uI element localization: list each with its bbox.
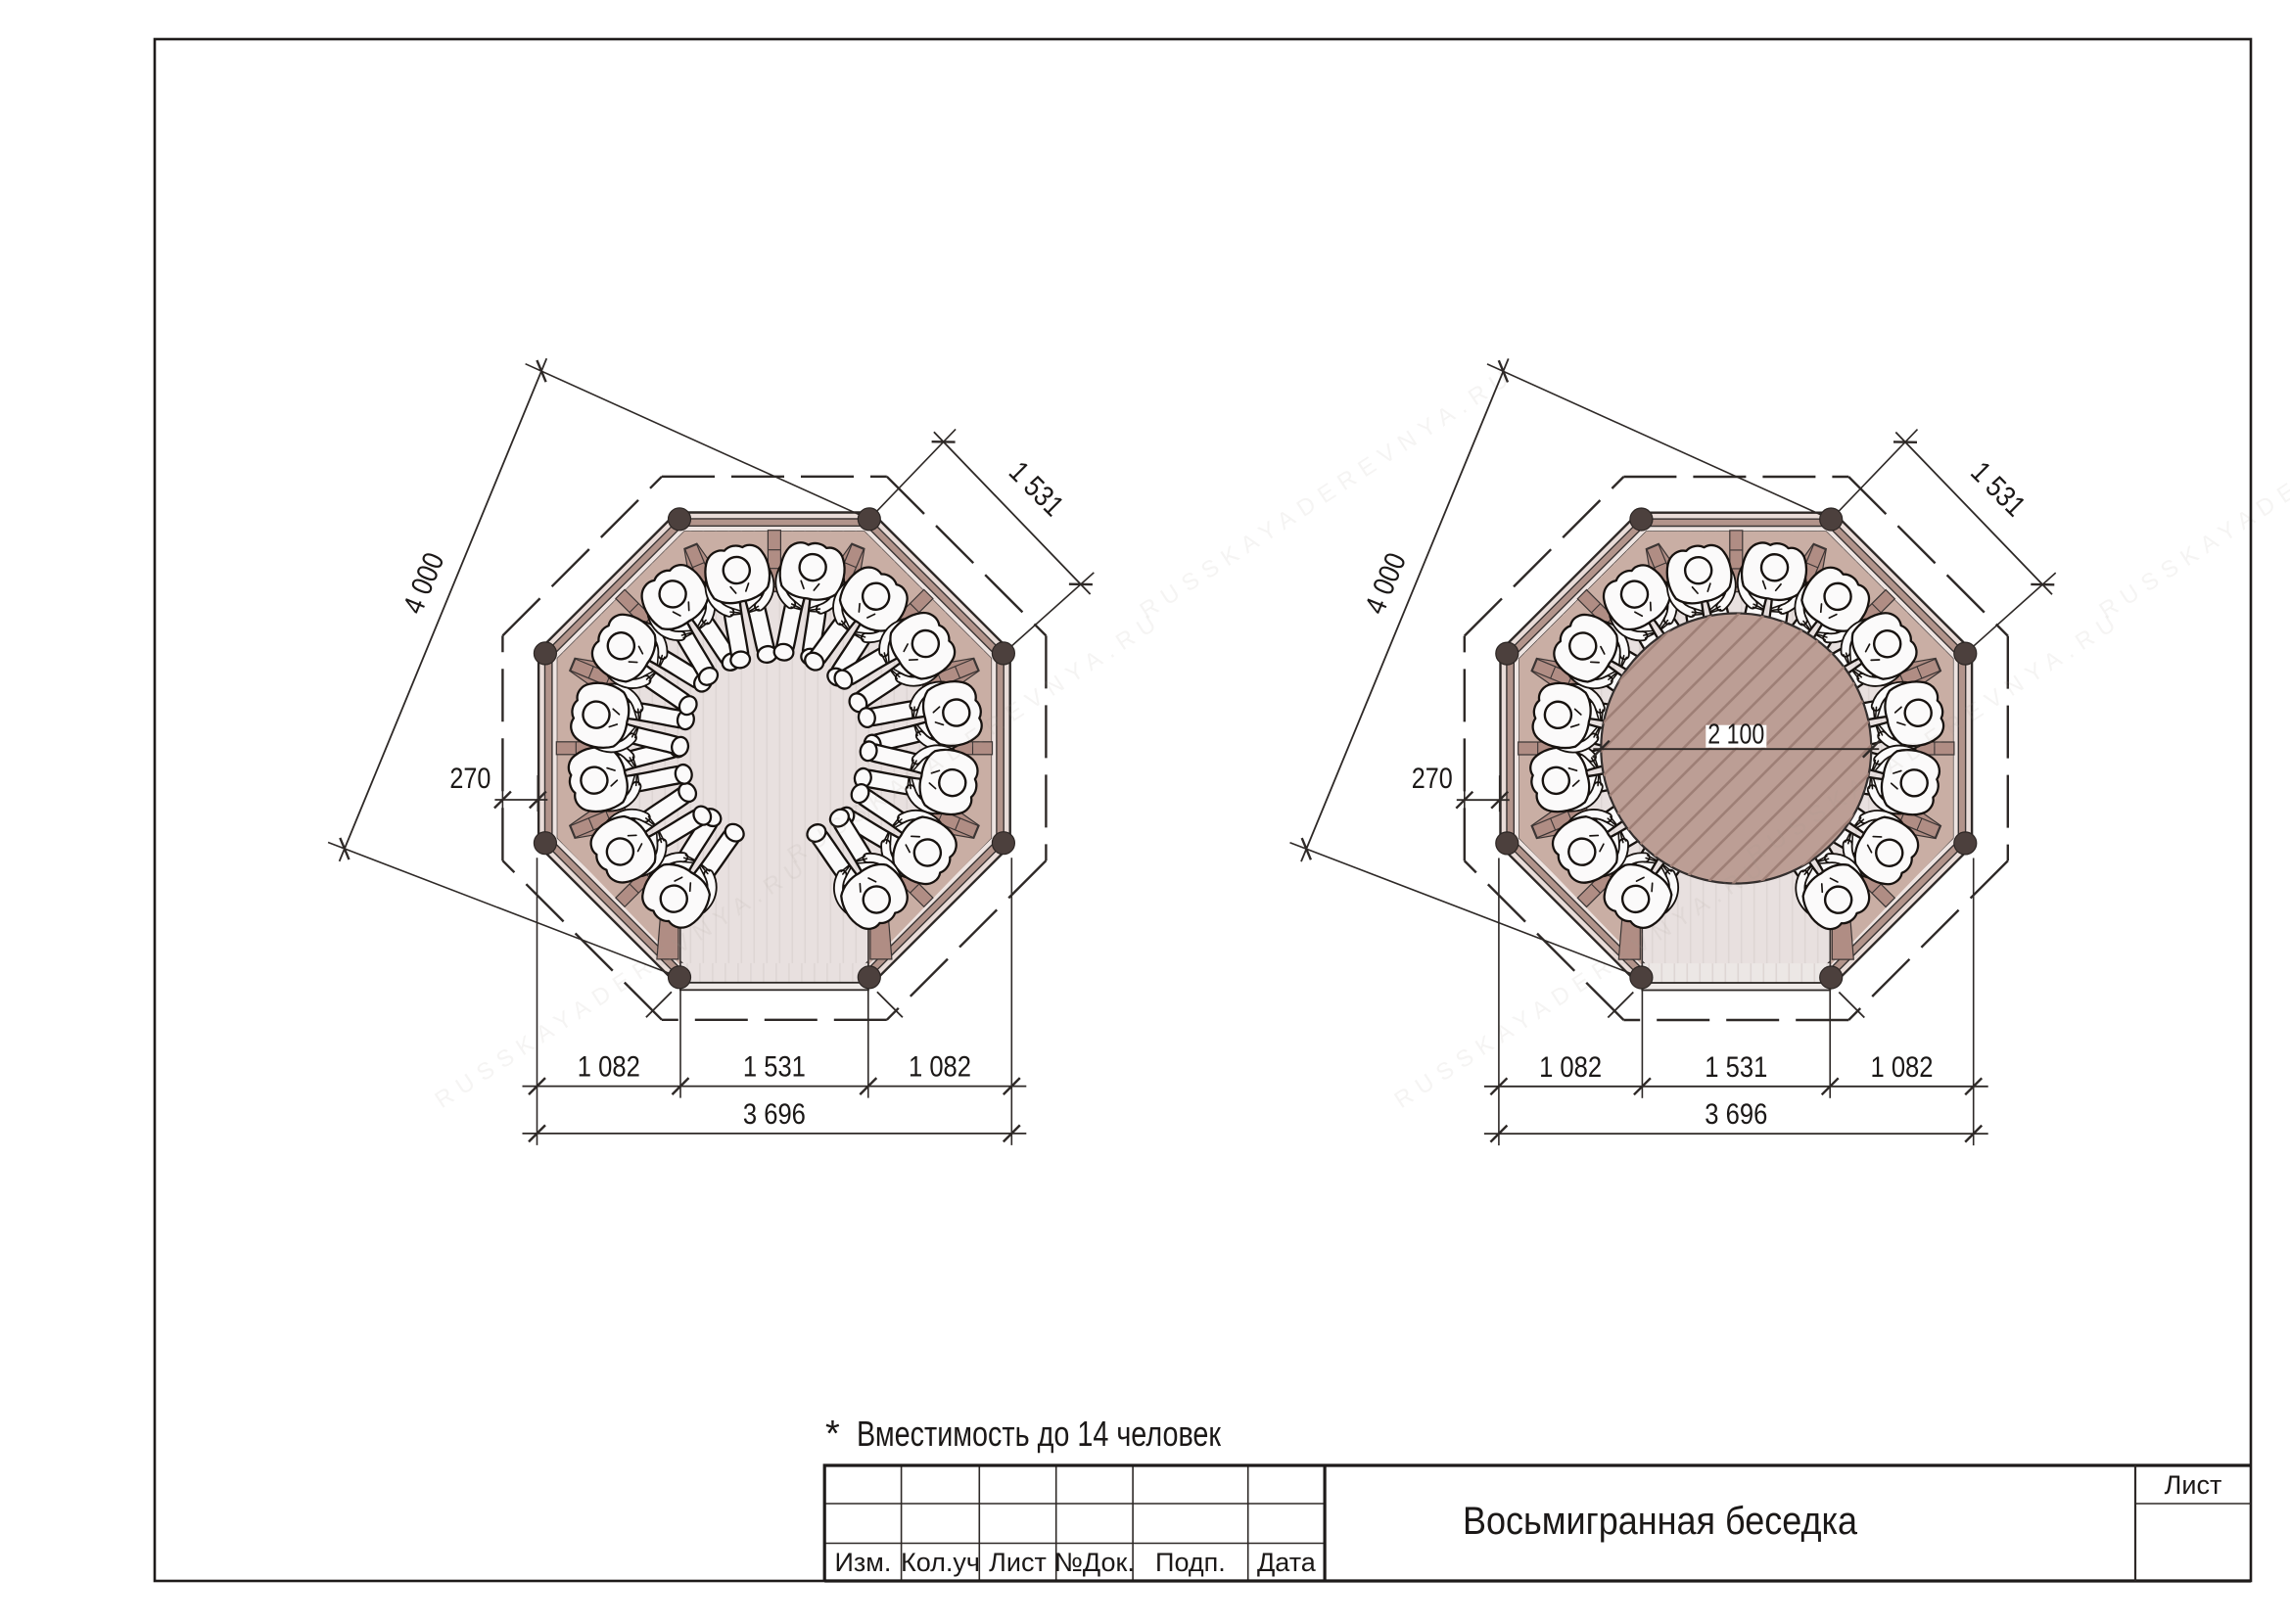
svg-text:1 082: 1 082 — [1539, 1051, 1602, 1084]
svg-text:3 696: 3 696 — [743, 1098, 806, 1131]
svg-text:Восьмигранная беседка: Восьмигранная беседка — [1463, 1500, 1858, 1543]
svg-text:1 082: 1 082 — [578, 1051, 640, 1084]
svg-text:1 082: 1 082 — [909, 1051, 971, 1084]
svg-text:Вместимость до 14 человек: Вместимость до 14 человек — [857, 1414, 1221, 1454]
svg-text:2 100: 2 100 — [1707, 719, 1764, 751]
svg-text:Изм.: Изм. — [834, 1548, 891, 1577]
svg-text:270: 270 — [449, 763, 491, 795]
svg-text:Лист: Лист — [2165, 1470, 2222, 1500]
svg-text:Кол.уч: Кол.уч — [901, 1548, 980, 1577]
svg-text:270: 270 — [1412, 763, 1453, 795]
svg-text:1 531: 1 531 — [1705, 1051, 1767, 1084]
svg-text:Лист: Лист — [989, 1548, 1047, 1577]
svg-text:Подп.: Подп. — [1155, 1548, 1226, 1577]
svg-text:№Док.: №Док. — [1054, 1548, 1135, 1577]
svg-text:1 082: 1 082 — [1871, 1051, 1934, 1084]
svg-text:1 531: 1 531 — [743, 1051, 806, 1084]
svg-text:Дата: Дата — [1257, 1548, 1317, 1577]
svg-text:3 696: 3 696 — [1705, 1098, 1767, 1131]
svg-text:*: * — [825, 1414, 840, 1455]
